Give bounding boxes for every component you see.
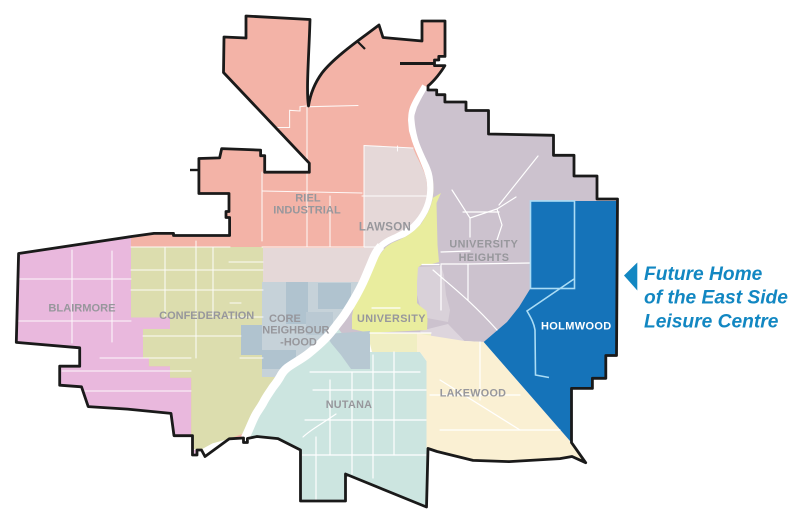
svg-text:LAWSON: LAWSON xyxy=(359,222,411,234)
svg-text:INDUSTRIAL: INDUSTRIAL xyxy=(273,205,341,217)
svg-text:CORE: CORE xyxy=(269,313,301,325)
svg-text:BLAIRMORE: BLAIRMORE xyxy=(48,303,115,315)
svg-text:-HOOD: -HOOD xyxy=(280,336,317,348)
svg-text:LAKEWOOD: LAKEWOOD xyxy=(440,388,507,400)
svg-text:CONFEDERATION: CONFEDERATION xyxy=(159,310,254,322)
svg-text:NEIGHBOUR: NEIGHBOUR xyxy=(262,325,329,337)
svg-text:of the East Side: of the East Side xyxy=(644,288,788,309)
svg-text:Leisure Centre: Leisure Centre xyxy=(644,311,779,332)
svg-text:HOLMWOOD: HOLMWOOD xyxy=(541,321,612,333)
svg-text:HEIGHTS: HEIGHTS xyxy=(459,252,510,264)
svg-text:UNIVERSITY: UNIVERSITY xyxy=(449,239,518,251)
svg-text:NUTANA: NUTANA xyxy=(326,399,373,411)
svg-text:RIEL: RIEL xyxy=(295,193,321,205)
svg-text:UNIVERSITY: UNIVERSITY xyxy=(357,313,426,325)
svg-text:Future Home: Future Home xyxy=(644,264,763,285)
